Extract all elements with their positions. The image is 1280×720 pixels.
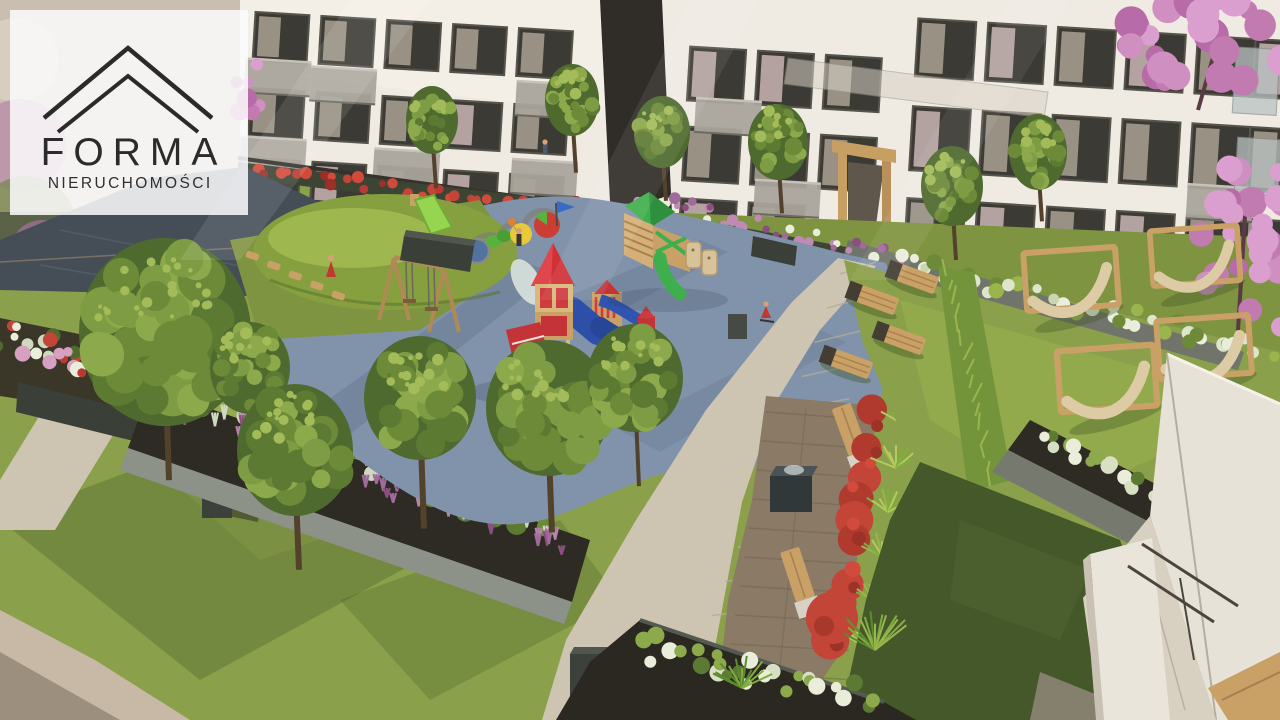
trash-bin — [728, 314, 747, 339]
forma-logo-watermark: FORMA NIERUCHOMOŚCI — [10, 10, 248, 215]
logo-subtitle-text: NIERUCHOMOŚCI — [10, 175, 248, 193]
patio-fountain — [770, 465, 818, 512]
logo-brand-text: FORMA — [10, 131, 248, 175]
courtyard-visualization: FORMA NIERUCHOMOŚCI — [0, 0, 1280, 720]
